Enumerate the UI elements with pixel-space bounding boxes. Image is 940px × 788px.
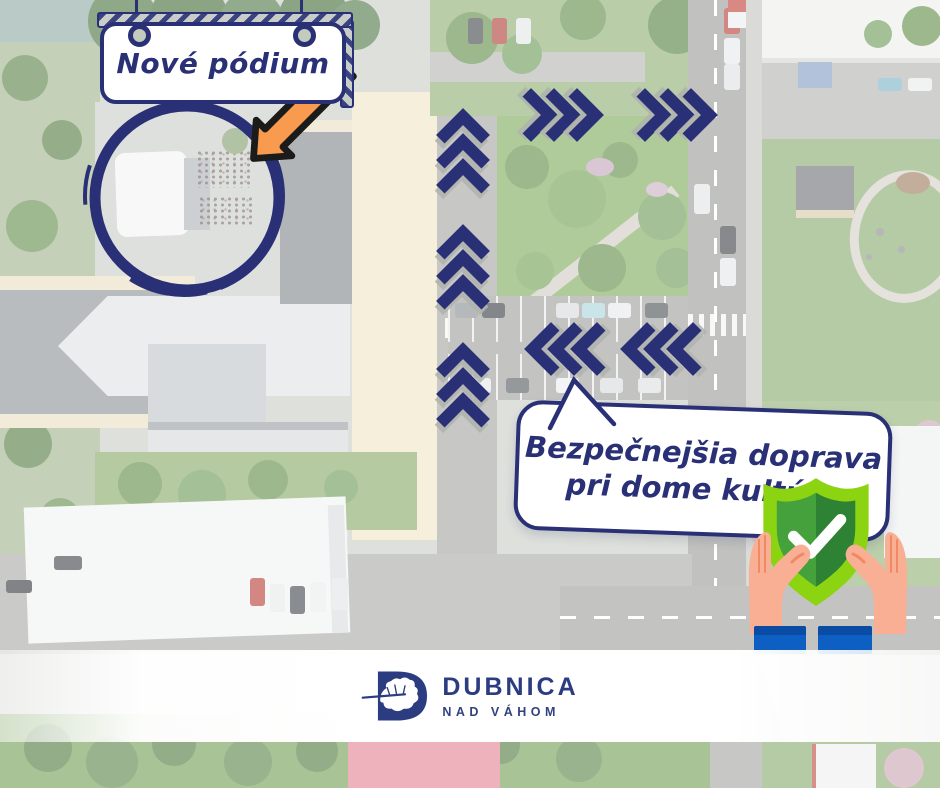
map-tree	[118, 462, 162, 506]
map-water-blur	[0, 0, 100, 42]
map-tree	[224, 738, 272, 786]
map-tree	[556, 736, 602, 782]
map-driving-car	[694, 184, 710, 214]
infographic-canvas: Nové pódium Bezpečnejšia doprava pri dom…	[0, 0, 940, 788]
speech-bubble-tail	[546, 376, 618, 432]
map-parked-car	[724, 38, 740, 64]
logo-subtitle: NAD VÁHOM	[442, 705, 578, 719]
footer-banner: DUBNICA NAD VÁHOM	[0, 650, 940, 742]
map-building-pink	[348, 738, 500, 788]
map-playground-item	[898, 246, 905, 253]
map-parked-car	[724, 64, 740, 90]
map-parked-car	[516, 18, 531, 44]
map-house-wall	[796, 210, 854, 218]
map-parked-car	[492, 18, 507, 44]
map-flowerbed	[896, 172, 930, 194]
map-flowerbed	[646, 182, 668, 197]
map-parked-car	[250, 578, 265, 606]
map-store-apron	[762, 63, 940, 139]
open-hand-right-icon	[840, 526, 920, 634]
map-parked-car	[582, 303, 605, 318]
map-tree	[864, 20, 892, 48]
map-tree	[578, 244, 626, 292]
map-playground-item	[876, 228, 884, 236]
map-parked-car	[878, 78, 902, 91]
map-parked-car	[468, 18, 483, 44]
map-tree	[505, 145, 549, 189]
open-hand-left-icon	[736, 526, 816, 634]
map-parked-car	[638, 378, 661, 393]
map-parked-car	[6, 580, 32, 593]
map-garage-red-strip	[812, 744, 816, 788]
map-pink-tree	[884, 748, 924, 788]
map-parked-car	[310, 582, 326, 612]
map-truck	[728, 0, 748, 12]
map-parked-car	[556, 303, 579, 318]
map-playground-item	[866, 254, 872, 260]
map-blue-canopy	[798, 62, 832, 88]
map-tree	[516, 252, 554, 290]
logo-text-block: DUBNICA NAD VÁHOM	[442, 673, 578, 719]
sign-label: Nové pódium	[116, 47, 329, 80]
map-tree	[548, 170, 606, 228]
map-garage-white	[812, 744, 876, 788]
map-parked-car	[645, 303, 668, 318]
map-parked-car	[290, 586, 305, 614]
logo-title: DUBNICA	[442, 673, 578, 702]
map-parked-car	[332, 578, 348, 610]
map-parked-car	[720, 258, 736, 286]
map-tree	[248, 460, 288, 500]
map-building-long-white	[24, 496, 351, 643]
sign-ring-icon	[128, 24, 151, 47]
oak-leaf-d-logo-icon	[361, 668, 427, 724]
map-tree	[638, 192, 686, 240]
map-parked-car	[270, 584, 285, 612]
map-tree	[2, 55, 48, 101]
map-truck	[728, 12, 748, 28]
map-parked-car	[608, 303, 631, 318]
map-parked-car	[506, 378, 529, 393]
map-tree	[86, 736, 138, 788]
map-flowerbed	[586, 158, 614, 176]
map-parked-car	[720, 226, 736, 254]
map-parked-car	[908, 78, 932, 91]
map-parked-car	[54, 556, 82, 570]
map-tree	[902, 6, 940, 46]
map-house-roof	[796, 166, 854, 214]
map-tree	[6, 200, 58, 252]
sign-ring-icon	[293, 24, 316, 47]
